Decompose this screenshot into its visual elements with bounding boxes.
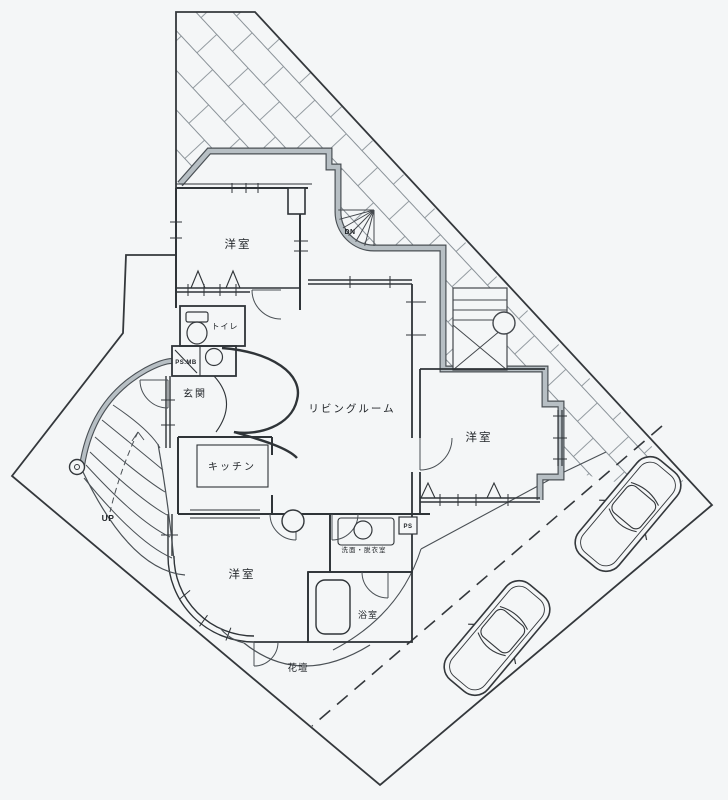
tree-circle	[493, 312, 515, 334]
label-ps-mb: PS.MB	[175, 360, 197, 366]
deck-structure	[453, 288, 515, 370]
label-dn: DN	[344, 229, 355, 236]
label-up: UP	[102, 513, 115, 523]
label-bathroom: 浴室	[358, 609, 378, 620]
label-flower-bed: 花壇	[287, 662, 308, 674]
label-western-room-bottom: 洋室	[229, 567, 256, 581]
label-toilet: トイレ	[212, 322, 239, 331]
label-entrance: 玄関	[183, 387, 207, 400]
label-living-room: リビングルーム	[308, 402, 395, 415]
label-washroom: 洗面・脱衣室	[342, 545, 387, 554]
label-ps: PS	[403, 524, 412, 530]
column-circle	[282, 510, 304, 532]
label-western-room-right: 洋室	[466, 430, 493, 444]
gate-post	[70, 460, 85, 475]
floor-plan-drawing: 洋室 DN トイレ PS.MB 玄関 リビングルーム キッチン 洋室 洋室 洗面…	[0, 0, 728, 800]
label-kitchen: キッチン	[208, 461, 256, 473]
floor-plan-sheet: 洋室 DN トイレ PS.MB 玄関 リビングルーム キッチン 洋室 洋室 洗面…	[0, 0, 728, 800]
label-western-room-top: 洋室	[225, 237, 252, 251]
